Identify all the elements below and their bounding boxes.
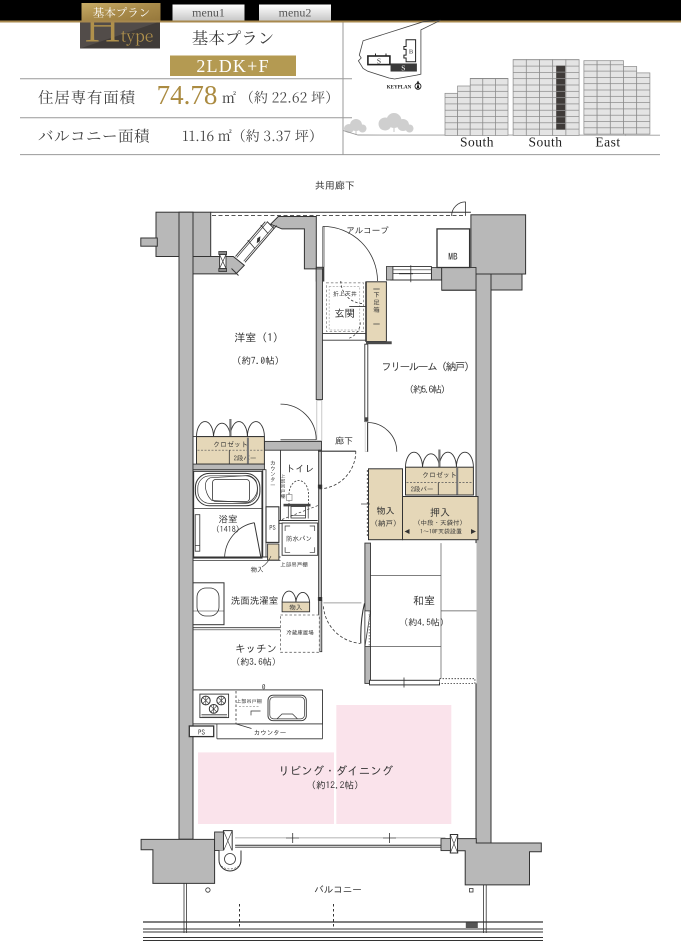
svg-text:menu2: menu2 bbox=[279, 6, 312, 20]
svg-text:menu1: menu1 bbox=[192, 6, 225, 20]
svg-text:74.78: 74.78 bbox=[157, 80, 218, 110]
svg-text:S: S bbox=[377, 56, 381, 65]
svg-text:East: East bbox=[595, 135, 620, 150]
svg-text:South: South bbox=[460, 135, 494, 150]
svg-text:South: South bbox=[528, 135, 562, 150]
svg-text:2LDK+F: 2LDK+F bbox=[196, 56, 269, 76]
svg-text:KEYPLAN: KEYPLAN bbox=[387, 85, 412, 90]
svg-text:S: S bbox=[401, 64, 405, 73]
svg-text:B: B bbox=[409, 49, 414, 56]
